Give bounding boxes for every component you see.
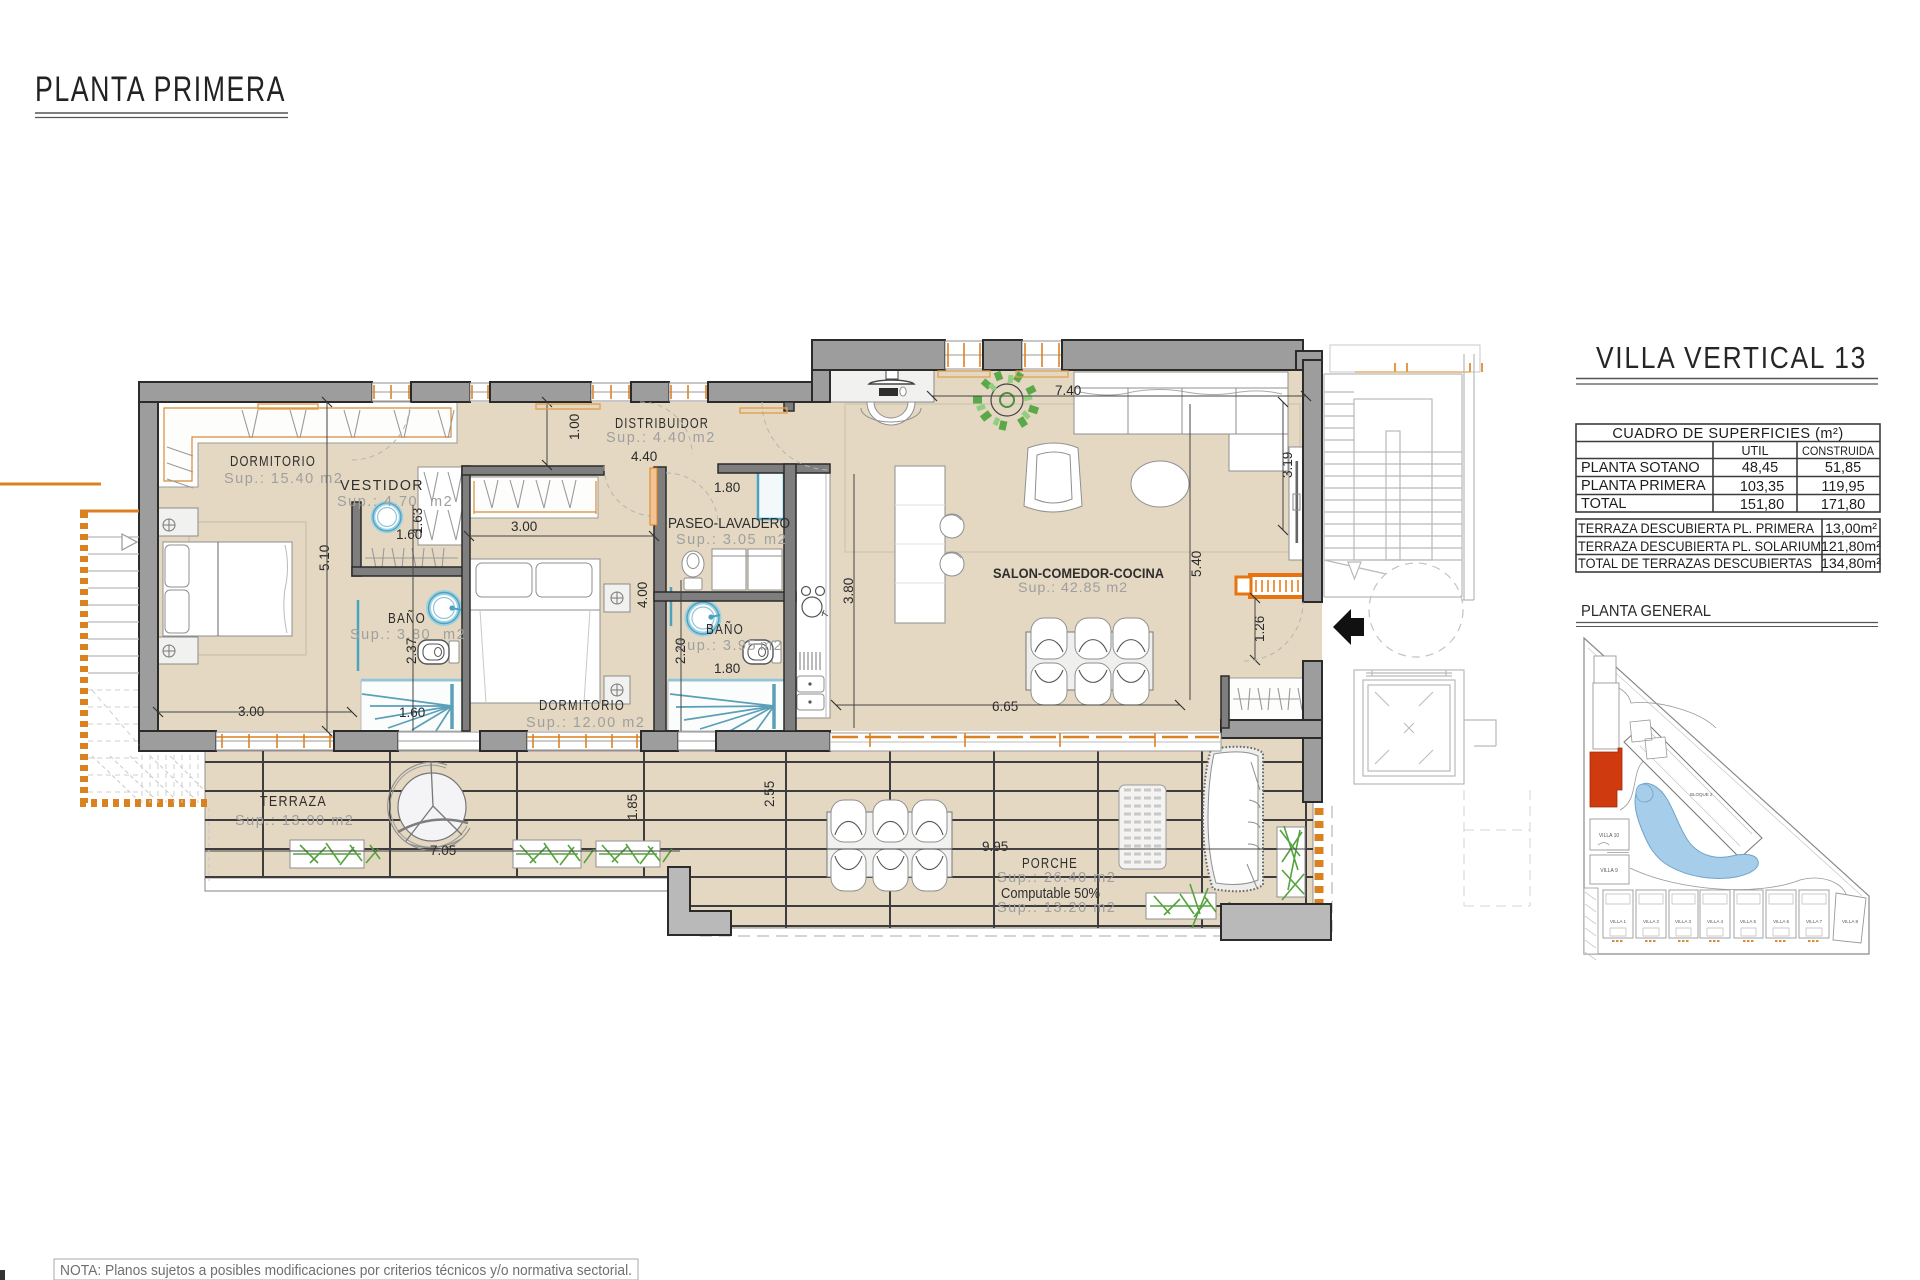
svg-text:NOTA: Planos sujetos a posible: NOTA: Planos sujetos a posibles modifica…	[60, 1262, 632, 1279]
svg-text:VILLA 2: VILLA 2	[1643, 919, 1660, 924]
svg-text:VILLA 3: VILLA 3	[1675, 919, 1692, 924]
svg-text:4.40: 4.40	[631, 449, 657, 464]
svg-text:1.60: 1.60	[399, 705, 425, 720]
svg-text:PLANTA PRIMERA: PLANTA PRIMERA	[1581, 478, 1706, 494]
svg-text:VILLA 10: VILLA 10	[1599, 833, 1620, 839]
svg-text:151,80: 151,80	[1740, 497, 1784, 513]
svg-text:Sup.: 13.20 m2: Sup.: 13.20 m2	[997, 900, 1116, 916]
svg-text:1.00: 1.00	[567, 414, 582, 440]
svg-text:VILLA 4: VILLA 4	[1707, 919, 1724, 924]
svg-text:103,35: 103,35	[1740, 479, 1784, 495]
svg-text:m2: m2	[760, 638, 783, 654]
svg-text:VILLA 5: VILLA 5	[1740, 919, 1757, 924]
svg-text:TOTAL: TOTAL	[1581, 496, 1626, 512]
svg-text:VILLA 9: VILLA 9	[1600, 868, 1618, 874]
svg-text:1.26: 1.26	[1252, 616, 1267, 642]
svg-text:1.85: 1.85	[625, 794, 640, 820]
svg-text:6.65: 6.65	[992, 699, 1018, 714]
svg-text:51,85: 51,85	[1825, 460, 1861, 476]
svg-text:171,80: 171,80	[1821, 497, 1865, 513]
svg-text:PLANTA SOTANO: PLANTA SOTANO	[1581, 460, 1700, 476]
svg-text:VILLA 6: VILLA 6	[1773, 919, 1790, 924]
svg-text:119,95: 119,95	[1821, 479, 1864, 495]
svg-text:3.19: 3.19	[1280, 452, 1295, 478]
svg-text:PLANTA PRIMERA: PLANTA PRIMERA	[35, 70, 286, 109]
svg-text:Sup.: 42.85 m2: Sup.: 42.85 m2	[1018, 580, 1128, 595]
svg-text:m2: m2	[764, 532, 787, 548]
svg-text:5.40: 5.40	[1189, 551, 1204, 577]
svg-text:CUADRO DE SUPERFICIES (m²): CUADRO DE SUPERFICIES (m²)	[1612, 426, 1843, 442]
svg-text:1.80: 1.80	[714, 661, 740, 676]
svg-text:SALON-COMEDOR-COCINA: SALON-COMEDOR-COCINA	[993, 566, 1164, 581]
svg-text:m2: m2	[443, 627, 466, 643]
svg-text:PASEO-LAVADERO: PASEO-LAVADERO	[668, 516, 790, 532]
svg-text:DORMITORIO: DORMITORIO	[230, 453, 316, 470]
svg-text:TERRAZA: TERRAZA	[260, 793, 327, 810]
svg-text:VILLA 1: VILLA 1	[1610, 919, 1627, 924]
svg-text:PLANTA GENERAL: PLANTA GENERAL	[1581, 603, 1711, 620]
svg-text:VESTIDOR: VESTIDOR	[340, 477, 424, 494]
svg-text:3.00: 3.00	[511, 519, 537, 534]
svg-text:Sup.: 4.40 m2: Sup.: 4.40 m2	[606, 430, 716, 446]
svg-text:1.63: 1.63	[410, 508, 425, 534]
svg-text:134,80m²: 134,80m²	[1821, 556, 1881, 572]
svg-text:Sup.: 3.05: Sup.: 3.05	[676, 532, 757, 548]
svg-text:BAÑO: BAÑO	[706, 621, 744, 638]
svg-text:BLOQUE 2: BLOQUE 2	[1690, 792, 1713, 797]
svg-text:4.00: 4.00	[635, 582, 650, 608]
svg-text:BAÑO: BAÑO	[388, 610, 426, 627]
svg-text:13,00m²: 13,00m²	[1825, 521, 1877, 537]
svg-text:121,80m²: 121,80m²	[1821, 539, 1881, 555]
svg-text:Sup.: 3.95: Sup.: 3.95	[676, 638, 757, 654]
svg-text:Sup.: 4.70: Sup.: 4.70	[337, 494, 418, 510]
svg-text:1.80: 1.80	[714, 480, 740, 495]
svg-text:5.10: 5.10	[317, 545, 332, 571]
svg-text:VILLA 8: VILLA 8	[1842, 919, 1859, 924]
svg-text:VILLA VERTICAL 13: VILLA VERTICAL 13	[1596, 340, 1867, 375]
svg-text:2.37: 2.37	[404, 638, 419, 664]
svg-text:Sup.: 15.40 m2: Sup.: 15.40 m2	[224, 471, 343, 487]
svg-text:DORMITORIO: DORMITORIO	[539, 697, 625, 714]
svg-text:VILLA 7: VILLA 7	[1806, 919, 1823, 924]
svg-text:Sup.: 26.40 m2: Sup.: 26.40 m2	[997, 870, 1116, 886]
svg-text:TERRAZA DESCUBIERTA PL. PRIMER: TERRAZA DESCUBIERTA PL. PRIMERA	[1578, 521, 1814, 537]
svg-text:UTIL: UTIL	[1741, 444, 1768, 458]
svg-text:TERRAZA DESCUBIERTA PL. SOLARI: TERRAZA DESCUBIERTA PL. SOLARIUM	[1578, 539, 1821, 555]
svg-text:TOTAL DE TERRAZAS DESCUBIERTAS: TOTAL DE TERRAZAS DESCUBIERTAS	[1578, 556, 1812, 572]
svg-text:2.55: 2.55	[762, 781, 777, 807]
svg-text:m2: m2	[430, 494, 453, 510]
svg-text:Sup.: 12.00 m2: Sup.: 12.00 m2	[526, 715, 645, 731]
svg-text:48,45: 48,45	[1742, 460, 1778, 476]
svg-text:9.95: 9.95	[982, 839, 1008, 854]
svg-text:CONSTRUIDA: CONSTRUIDA	[1802, 444, 1874, 458]
svg-text:Sup.: 13.00 m2: Sup.: 13.00 m2	[235, 813, 354, 829]
